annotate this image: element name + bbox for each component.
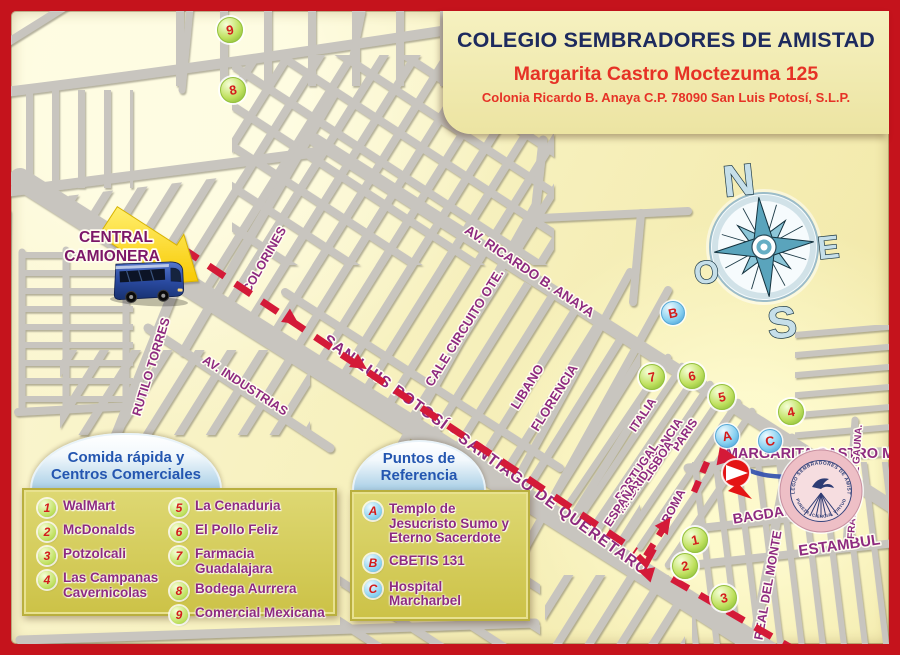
marker-5: 5 xyxy=(707,382,737,412)
legend-item-A: ATemplo de Jesucristo Sumo y Eterno Sace… xyxy=(364,502,522,546)
compass-n: N xyxy=(721,155,758,207)
legend-food-title-line1: Comida rápida y xyxy=(32,449,220,466)
marker-A: A xyxy=(714,423,741,450)
legend-item-2: 2McDonalds xyxy=(38,523,170,541)
marker-3: 3 xyxy=(709,583,739,613)
legend-food-box: 1WalMart 2McDonalds 3Potzolcali 4Las Cam… xyxy=(22,488,337,616)
legend-item-8: 8Bodega Aurrera xyxy=(170,582,329,600)
legend-refs-title-line1: Puntos de xyxy=(354,450,484,467)
legend-food-col1: 1WalMart 2McDonalds 3Potzolcali 4Las Cam… xyxy=(38,499,170,610)
central-camionera-line1: CENTRAL xyxy=(79,229,153,246)
compass-o: O xyxy=(692,253,721,291)
legend-item-5: 5La Cenaduria xyxy=(170,499,329,517)
marker-4: 4 xyxy=(776,397,806,427)
marker-9: 9 xyxy=(215,15,245,45)
marker-1: 1 xyxy=(680,525,710,555)
compass-rose: N E S O xyxy=(682,147,849,356)
marker-C: C xyxy=(757,428,784,455)
bus-icon xyxy=(110,259,190,308)
legend-item-C: CHospital Marcharbel xyxy=(364,580,522,609)
legend-item-6: 6El Pollo Feliz xyxy=(170,523,329,541)
legend-refs-box: ATemplo de Jesucristo Sumo y Eterno Sace… xyxy=(350,490,530,621)
legend-food-title-line2: Centros Comerciales xyxy=(32,466,220,483)
marker-7: 7 xyxy=(637,362,667,392)
school-title: COLEGIO SEMBRADORES DE AMISTAD xyxy=(443,28,889,53)
central-camionera-line2: CAMIONERA xyxy=(64,248,160,265)
school-address-detail: Colonia Ricardo B. Anaya C.P. 78090 San … xyxy=(443,90,889,105)
school-seal: COLEGIO SEMBRADORES DE AMISTAD PUREZA, C… xyxy=(778,448,864,534)
legend-item-4: 4Las Campanas Cavernicolas xyxy=(38,571,170,600)
marker-2: 2 xyxy=(670,551,700,581)
legend-item-B: BCBETIS 131 xyxy=(364,554,522,572)
legend-item-7: 7Farmacia Guadalajara xyxy=(170,547,329,576)
map-flyer: { "header": { "title": "COLEGIO SEMBRADO… xyxy=(0,0,900,655)
legend-item-3: 3Potzolcali xyxy=(38,547,170,565)
legend-item-9: 9Comercial Mexicana xyxy=(170,606,329,624)
marker-6: 6 xyxy=(677,361,707,391)
legend-item-1: 1WalMart xyxy=(38,499,170,517)
legend-refs-title-line2: Referencia xyxy=(354,467,484,484)
marker-8: 8 xyxy=(218,75,248,105)
legend-food-col2: 5La Cenaduria 6El Pollo Feliz 7Farmacia … xyxy=(170,499,329,610)
compass-s: S xyxy=(765,297,799,349)
header-card: COLEGIO SEMBRADORES DE AMISTAD Margarita… xyxy=(443,11,889,134)
compass-e: E xyxy=(816,228,841,266)
school-address: Margarita Castro Moctezuma 125 xyxy=(443,63,889,86)
marker-B: B xyxy=(660,300,687,327)
